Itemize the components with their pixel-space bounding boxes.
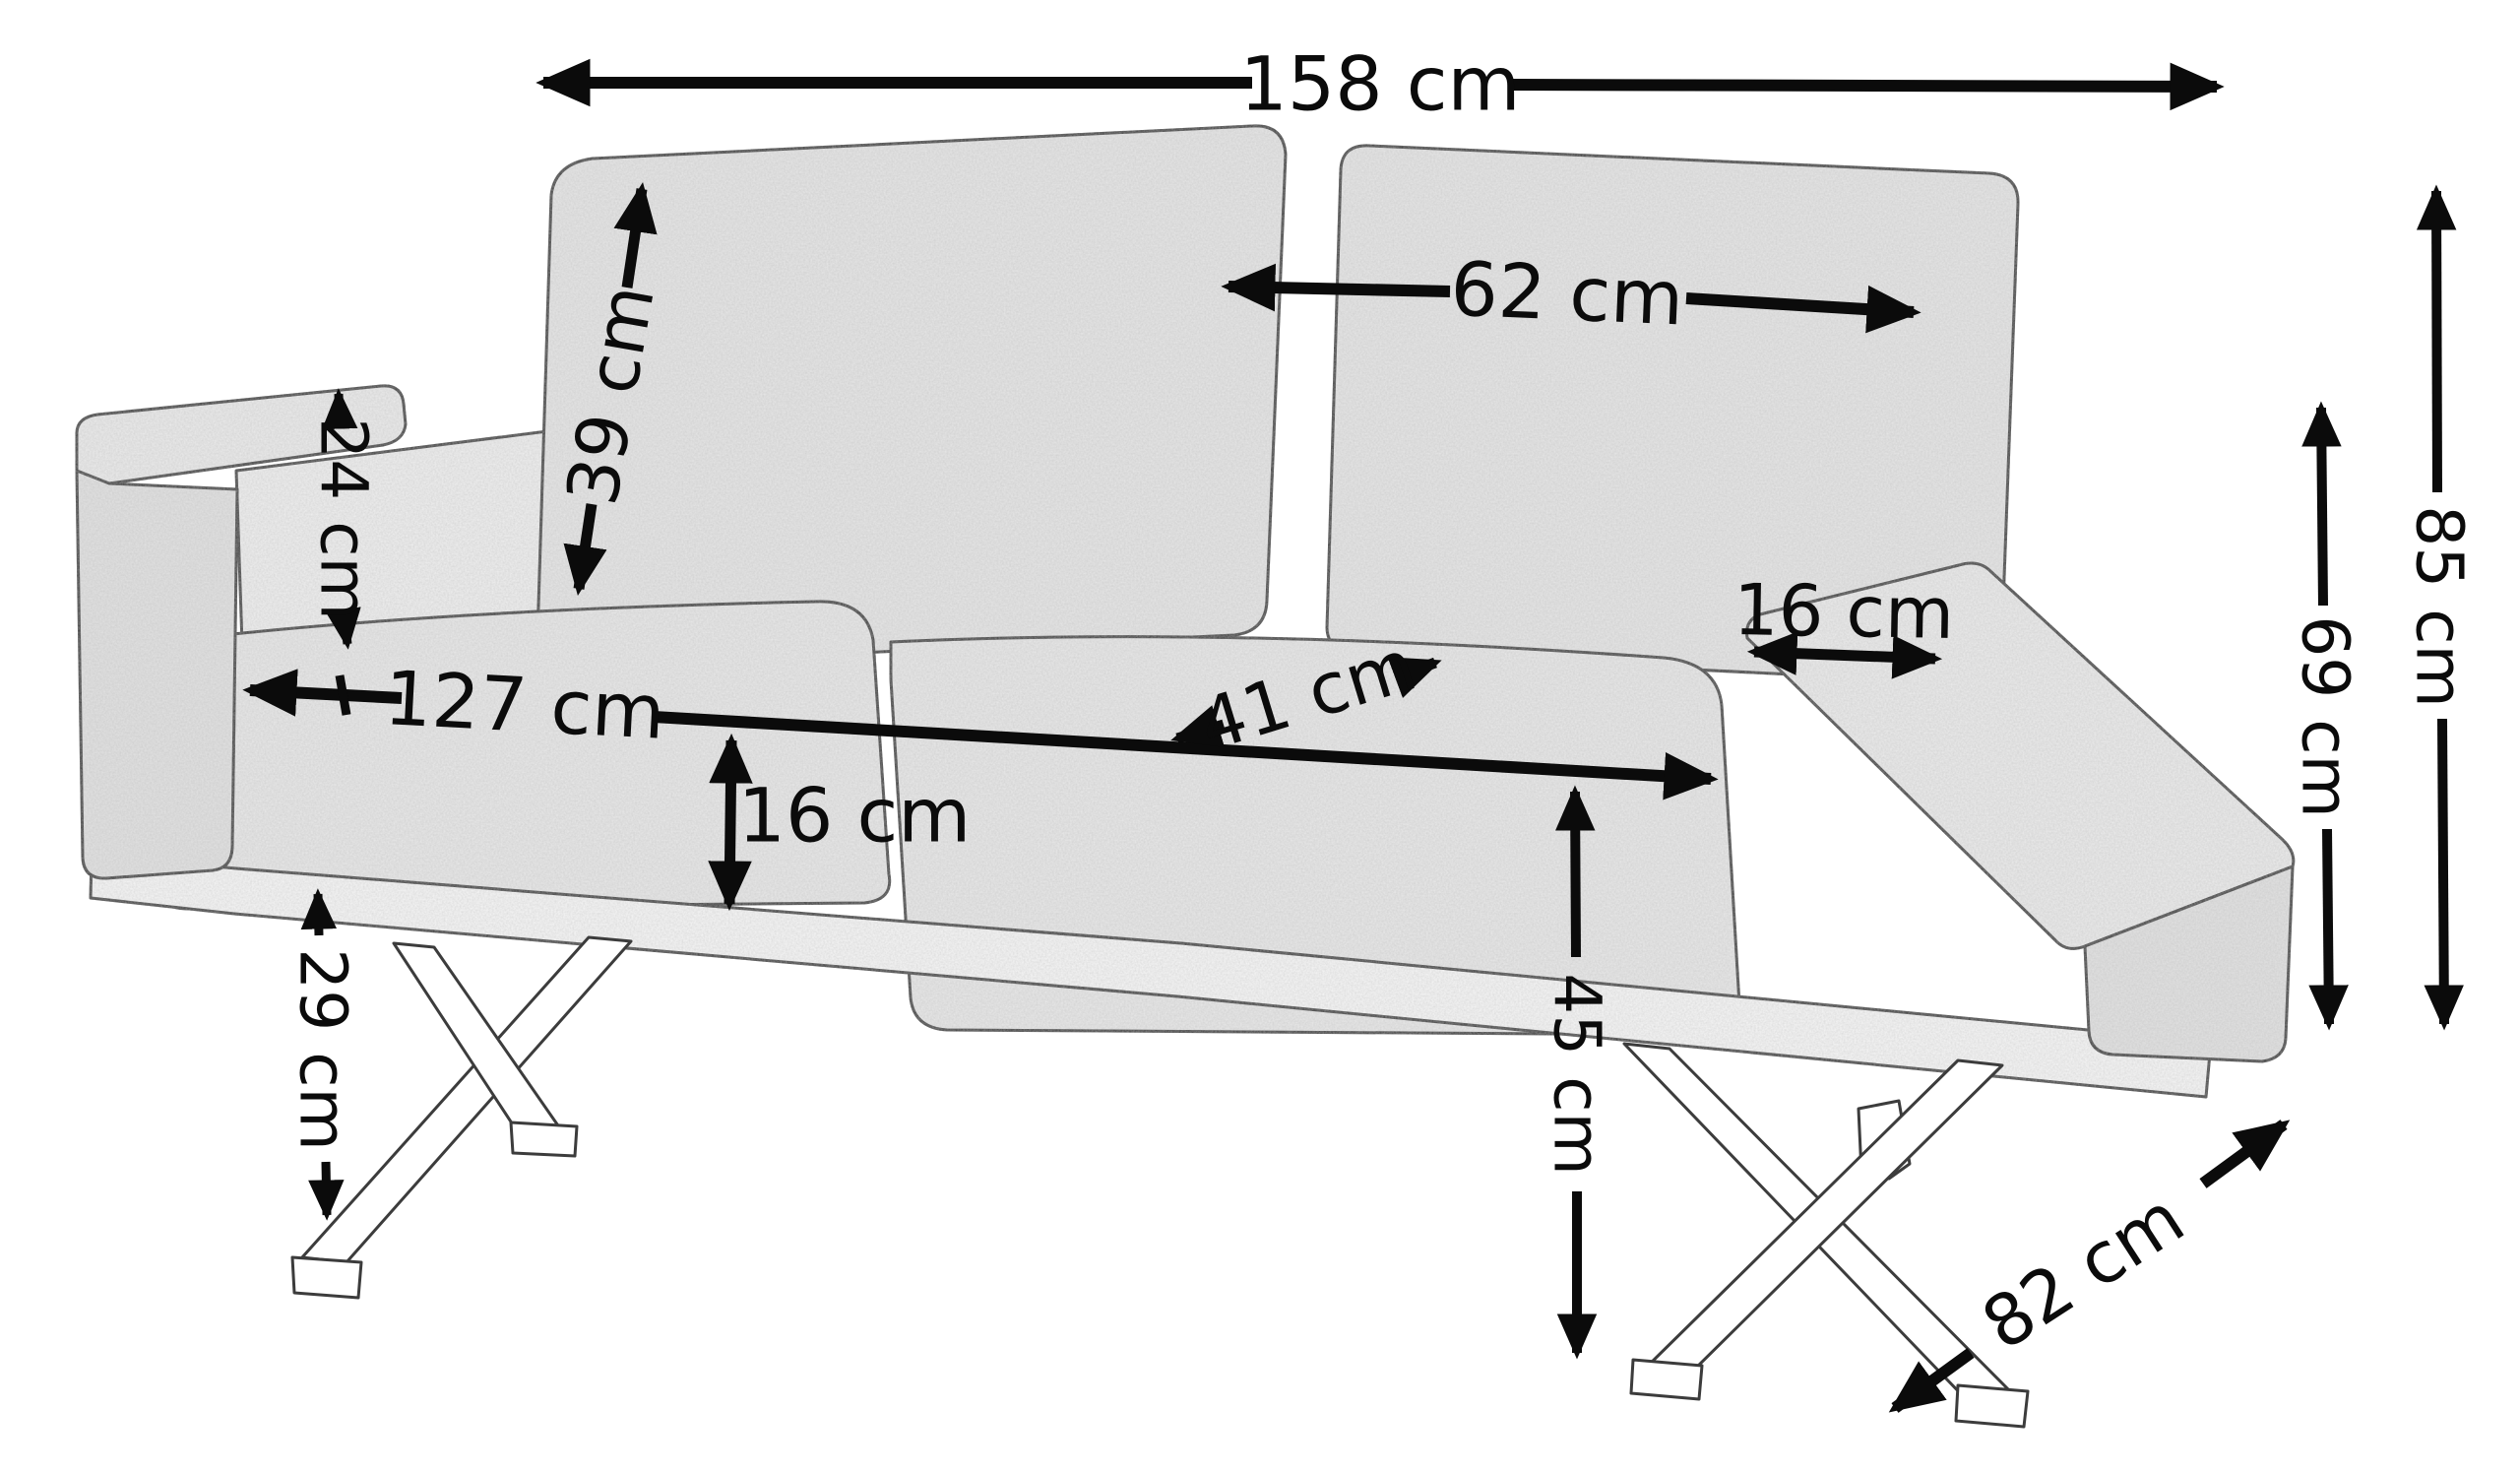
sofa-dimension-diagram: 158 cm 62 cm 39 cm 24 cm 127 cm 41 cm 16… bbox=[0, 0, 2520, 1473]
right-leg-front-foot bbox=[1956, 1385, 2028, 1427]
dim-label: 69 cm bbox=[2288, 615, 2363, 818]
left-leg-rear-foot bbox=[292, 1257, 361, 1298]
diagram-canvas: 158 cm 62 cm 39 cm 24 cm 127 cm 41 cm 16… bbox=[0, 0, 2520, 1473]
dim-label: 82 cm bbox=[1968, 1177, 2198, 1367]
dim-label: 127 cm bbox=[382, 654, 666, 756]
dim-armrest-to-seat: 24 cm bbox=[306, 394, 382, 644]
dim-line bbox=[2436, 191, 2437, 492]
dim-overall-height: 85 cm bbox=[2402, 191, 2478, 1024]
dim-label: 45 cm bbox=[1540, 973, 1615, 1176]
dim-label: 16 cm bbox=[1732, 568, 1955, 655]
dim-line bbox=[2442, 719, 2444, 1024]
dim-armrest-top-width: 16 cm bbox=[1732, 568, 1955, 659]
dim-line bbox=[326, 1162, 327, 1215]
dim-line bbox=[729, 740, 731, 904]
dim-line bbox=[346, 628, 347, 644]
dim-label: 158 cm bbox=[1239, 40, 1520, 128]
dim-armrest-height: 69 cm bbox=[2288, 408, 2363, 1024]
left-leg-front-foot bbox=[511, 1122, 577, 1156]
dim-line bbox=[1228, 287, 1450, 291]
dim-line bbox=[2203, 1124, 2284, 1184]
dim-overall-width: 158 cm bbox=[543, 40, 2217, 128]
dim-label: 62 cm bbox=[1449, 245, 1685, 343]
dim-line bbox=[2327, 829, 2329, 1024]
sofa-left-armrest-front bbox=[77, 433, 237, 878]
dim-leg-height: 29 cm bbox=[285, 894, 361, 1215]
dim-label: 29 cm bbox=[285, 948, 361, 1151]
dim-line bbox=[250, 690, 402, 698]
dim-label: 85 cm bbox=[2402, 505, 2478, 708]
dim-line bbox=[318, 894, 319, 935]
right-leg-cross-foot bbox=[1631, 1360, 1702, 1399]
sofa-seat-cushion-left bbox=[146, 602, 890, 909]
dim-line bbox=[1575, 792, 1576, 957]
dim-line bbox=[2321, 408, 2323, 606]
dim-overall-depth: 82 cm bbox=[1895, 1124, 2284, 1408]
dim-label: 24 cm bbox=[306, 417, 382, 620]
dim-line bbox=[1510, 85, 2217, 87]
dim-label: 16 cm bbox=[738, 772, 972, 860]
